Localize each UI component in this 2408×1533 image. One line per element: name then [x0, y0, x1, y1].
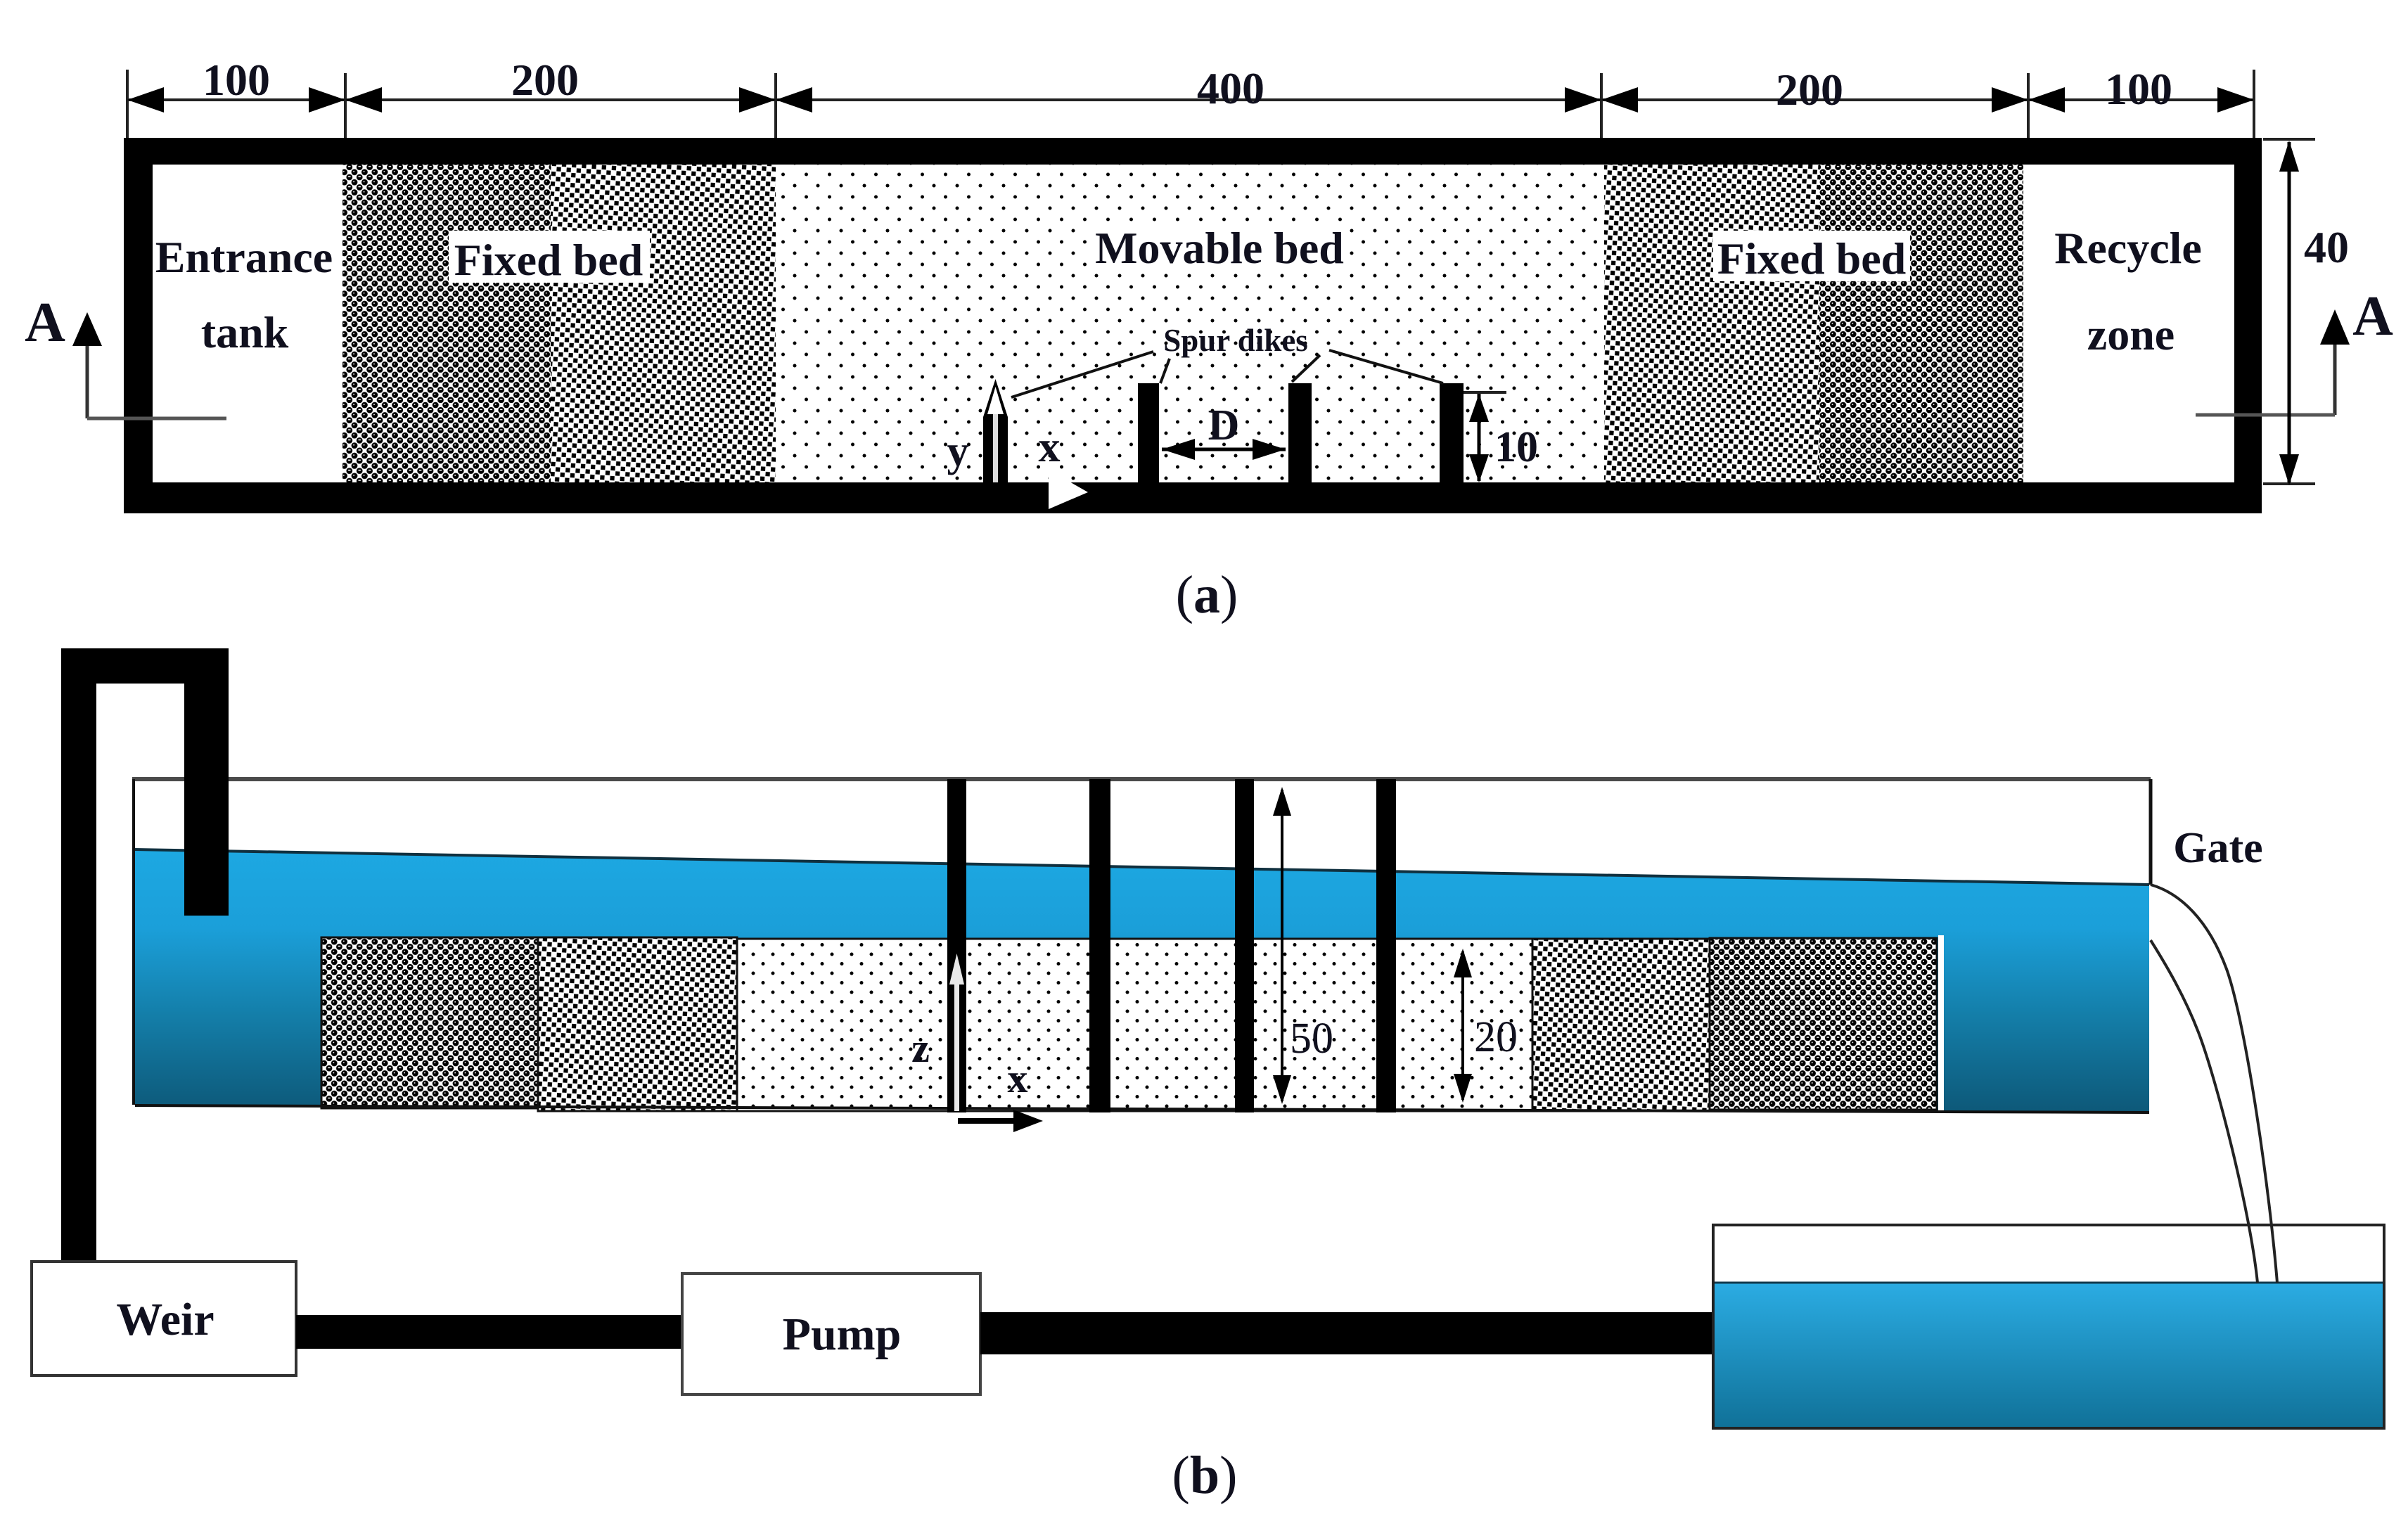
svg-text:40: 40 [2304, 222, 2349, 272]
svg-text:Movable bed: Movable bed [1095, 223, 1344, 273]
svg-text:10: 10 [1494, 423, 1538, 471]
svg-text:y: y [947, 428, 969, 475]
svg-text:20: 20 [1474, 1013, 1518, 1061]
svg-text:Entrance: Entrance [155, 232, 333, 282]
svg-text:Spur dikes: Spur dikes [1163, 323, 1308, 358]
svg-text:tank: tank [201, 307, 289, 357]
svg-text:200: 200 [1776, 65, 1843, 115]
svg-text:(a): (a) [1176, 565, 1238, 624]
svg-text:Fixed bed: Fixed bed [1717, 233, 1906, 283]
svg-text:Weir: Weir [116, 1294, 214, 1345]
svg-text:Fixed bed: Fixed bed [454, 235, 643, 285]
svg-text:z: z [911, 1025, 930, 1071]
svg-text:Recycle: Recycle [2054, 223, 2202, 273]
svg-text:A: A [2352, 286, 2393, 347]
svg-text:x: x [1039, 423, 1061, 471]
svg-text:(b): (b) [1172, 1446, 1238, 1505]
svg-text:D: D [1208, 402, 1240, 449]
svg-text:A: A [25, 292, 65, 354]
svg-text:400: 400 [1197, 63, 1264, 113]
svg-text:x: x [1008, 1056, 1028, 1101]
svg-text:zone: zone [2087, 309, 2175, 359]
svg-text:100: 100 [2105, 64, 2172, 114]
svg-text:50: 50 [1290, 1015, 1333, 1063]
svg-text:100: 100 [203, 55, 270, 105]
svg-text:200: 200 [511, 55, 579, 105]
svg-text:Pump: Pump [783, 1309, 902, 1360]
svg-text:Gate: Gate [2173, 824, 2262, 872]
